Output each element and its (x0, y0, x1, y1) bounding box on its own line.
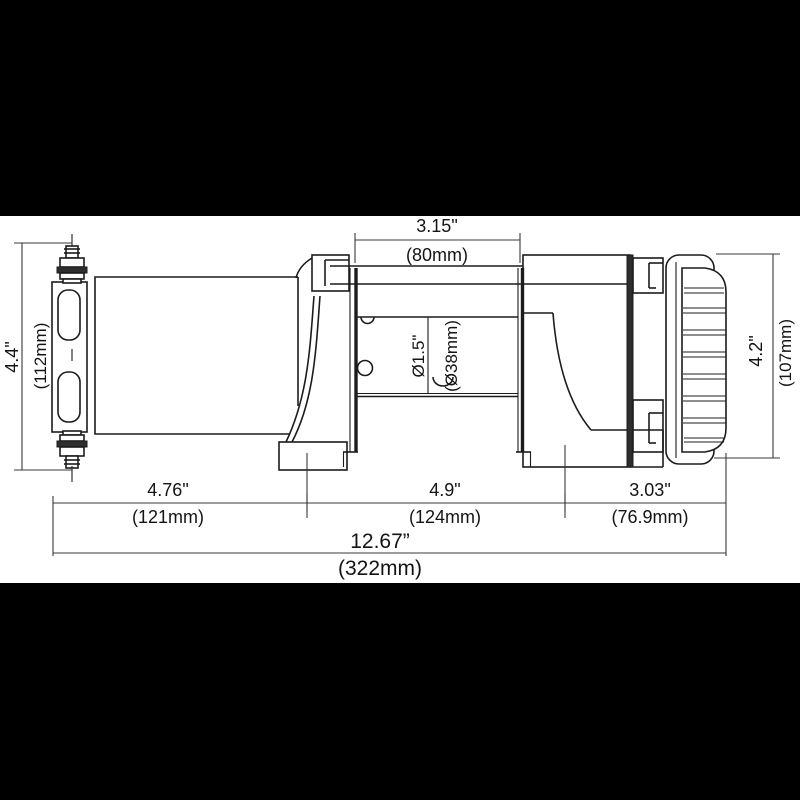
motor-end-cap (666, 255, 726, 464)
letterbox-top-bar (0, 0, 800, 216)
motor-section-inches-label: 4.76" (147, 480, 188, 500)
clutch-section (633, 258, 663, 452)
motor-end-height-metric-label: (107mm) (776, 319, 795, 387)
roller-fairlead (52, 282, 87, 432)
motor-section-metric-label: (121mm) (132, 507, 204, 527)
fairlead-height-inches-label: 4.4" (2, 341, 22, 372)
fairlead-height-metric-label: (112mm) (31, 323, 50, 390)
overall-length-metric-label: (322mm) (338, 557, 422, 580)
gear-housing (523, 255, 663, 467)
motor-end-height-inches-label: 4.2" (746, 335, 766, 366)
rope-drum (343, 268, 531, 467)
drum-width-metric-label: (80mm) (406, 245, 468, 265)
drum-diameter-metric-label: (Ø38mm) (442, 320, 461, 392)
drum-section-metric-label: (124mm) (409, 507, 481, 527)
winch-technical-drawing: 3.15" (80mm) 4.4" (112mm) Ø1.5" (Ø38mm) (0, 216, 800, 583)
dimension-overall-length: 12.67” (322mm) (53, 530, 726, 580)
top-mounting-bolt (57, 234, 87, 283)
left-support-bracket (279, 255, 349, 470)
drum-width-inches-label: 3.15" (416, 216, 457, 236)
letterbox-bottom-bar (0, 583, 800, 800)
drum-diameter-inches-label: Ø1.5" (409, 335, 428, 378)
gearbox-section-inches-label: 3.03" (629, 480, 670, 500)
motor-housing (95, 277, 298, 434)
drum-section-inches-label: 4.9" (429, 480, 460, 500)
drawing-paper: 3.15" (80mm) 4.4" (112mm) Ø1.5" (Ø38mm) (0, 216, 800, 583)
gearbox-section-metric-label: (76.9mm) (611, 507, 688, 527)
overall-length-inches-label: 12.67” (350, 530, 410, 553)
screenshot-stage: 3.15" (80mm) 4.4" (112mm) Ø1.5" (Ø38mm) (0, 0, 800, 800)
bottom-mounting-bolt (57, 431, 87, 482)
tie-bar (330, 266, 523, 284)
dimension-drum-width: 3.15" (80mm) (355, 216, 520, 265)
